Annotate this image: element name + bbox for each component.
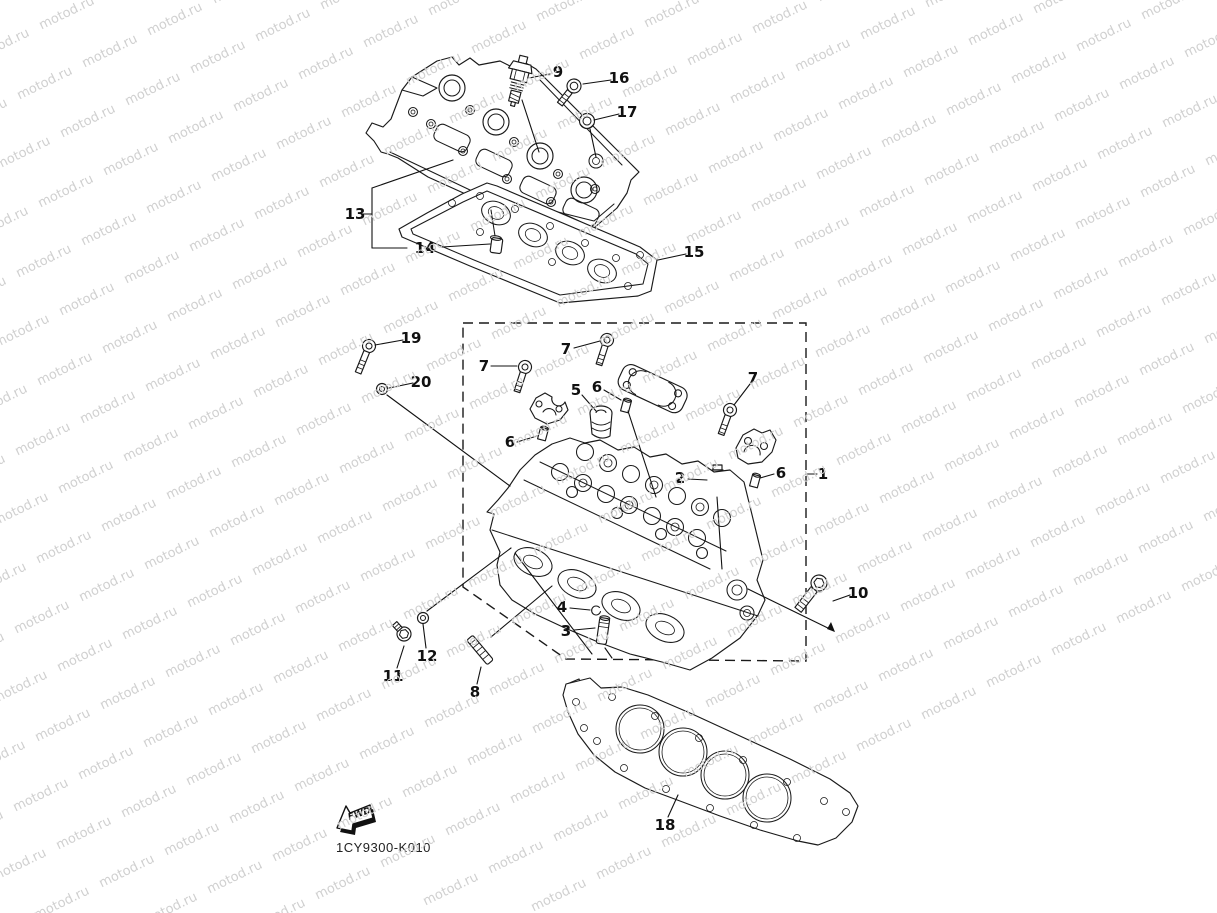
head-small-bolt	[352, 338, 377, 376]
callout-label-2: 2	[675, 469, 685, 487]
callout-label-15: 15	[684, 243, 705, 261]
callout-label-11: 11	[383, 667, 404, 685]
assembly-line	[427, 548, 511, 611]
callout-label-9: 9	[553, 63, 563, 81]
cam-cap-right	[736, 429, 776, 464]
callout-19-leader	[375, 340, 403, 345]
callout-label-7: 7	[479, 357, 489, 375]
callout-label-14: 14	[415, 239, 436, 257]
callout-label-1: 1	[818, 465, 828, 483]
callout-6-leader	[604, 390, 621, 400]
callout-label-6: 6	[776, 464, 786, 482]
callout-20-leader	[389, 383, 413, 388]
callout-label-16: 16	[609, 69, 630, 87]
cam-cap-bolt-2	[593, 332, 615, 367]
callout-12-leader	[423, 624, 426, 648]
dowel-pin-3	[750, 472, 761, 487]
callout-label-10: 10	[848, 584, 869, 602]
callout-label-4: 4	[557, 598, 567, 616]
callout-5-leader	[582, 395, 596, 411]
callout-16-leader	[583, 80, 611, 84]
callout-label-19: 19	[401, 329, 422, 347]
cam-cap-bolt-3	[715, 402, 738, 437]
callout-7-leader	[734, 384, 750, 405]
callout-label-13: 13	[345, 205, 366, 223]
callout-6-leader	[760, 474, 774, 478]
cylinder-head	[487, 438, 765, 670]
callout-17-leader	[594, 114, 619, 120]
callout-11-leader	[397, 646, 404, 668]
callout-7-leader	[574, 341, 600, 348]
callout-label-18: 18	[655, 816, 676, 834]
assembly-line	[605, 648, 612, 658]
cover-grommet	[580, 114, 595, 129]
callout-label-7: 7	[561, 340, 571, 358]
assembly-line	[387, 395, 510, 486]
parts-diagram-page: 12345666777891011121314151617181920 FWD …	[0, 0, 1217, 913]
callout-label-17: 17	[617, 103, 638, 121]
washer-12	[418, 613, 429, 624]
callout-label-12: 12	[417, 647, 438, 665]
cam-cap-left	[530, 393, 568, 424]
diagram-code: 1CY9300-K010	[336, 840, 431, 855]
callout-label-7: 7	[748, 369, 758, 387]
callout-label-5: 5	[571, 381, 581, 399]
callout-6-leader	[517, 436, 537, 442]
leader-arrowhead	[827, 622, 835, 632]
fwd-arrow: FWD	[337, 805, 376, 835]
callout-label-6: 6	[505, 433, 515, 451]
callout-label-6: 6	[592, 378, 602, 396]
callout-label-20: 20	[411, 373, 432, 391]
bolt-washer	[377, 384, 388, 395]
cam-cap-bolt-1	[511, 359, 533, 394]
cylinder-head-plug	[590, 406, 612, 438]
dowel-pin-1	[538, 425, 549, 440]
callout-15-leader	[658, 254, 686, 260]
exhaust-stud-8	[467, 635, 494, 665]
dowel-pin-2	[621, 397, 632, 412]
callout-label-3: 3	[561, 622, 571, 640]
callout-label-8: 8	[470, 683, 480, 701]
head-gasket	[563, 678, 858, 845]
exploded-parts-diagram: 12345666777891011121314151617181920 FWD …	[0, 0, 1217, 913]
flange-bolt-11	[389, 619, 413, 644]
flange-bolt-10	[792, 572, 830, 615]
callout-8-leader	[477, 667, 481, 684]
